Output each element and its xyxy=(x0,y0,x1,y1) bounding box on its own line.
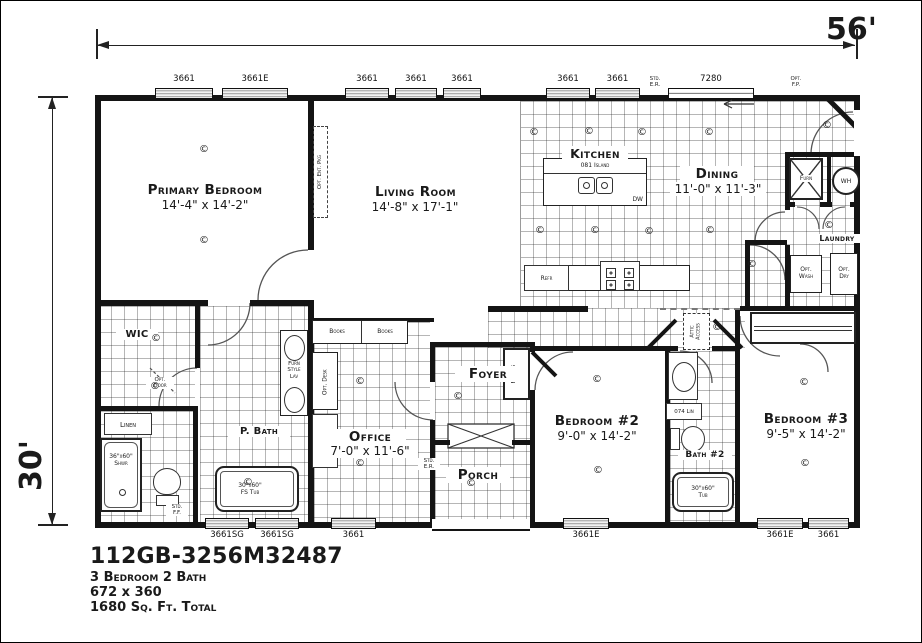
primary-bedroom-size: 14'-4" x 14'-2" xyxy=(140,198,270,212)
wall-front-door-right xyxy=(512,440,530,445)
wall-front-door-left xyxy=(430,440,450,445)
lav-sink-bottom xyxy=(284,387,305,413)
optional-entertainment: Opt. Ent. Pkg xyxy=(313,126,328,218)
ceiling-light-symbol: © xyxy=(824,220,834,231)
note-opt-fp: Opt. F.P. xyxy=(785,76,807,88)
window-label: 3661E xyxy=(554,530,618,540)
bath2-label: Bath #2 xyxy=(678,450,732,460)
pbath-vanity: Furn Style Lav xyxy=(280,330,308,416)
window-3661 xyxy=(546,88,590,99)
wall-shower-pbath xyxy=(193,406,198,525)
wall-furn-wh xyxy=(827,152,831,205)
ceiling-light-symbol: © xyxy=(199,144,209,155)
sink-basin-right xyxy=(596,177,613,194)
window-7280 xyxy=(668,88,754,99)
ceiling-light-symbol: © xyxy=(199,235,209,246)
optional-desk: Opt. Desk xyxy=(312,352,338,410)
primary-bedroom-label: Primary Bedroom xyxy=(120,182,290,198)
ceiling-light-symbol: © xyxy=(747,259,757,270)
furnace-label: Furn xyxy=(794,175,818,182)
ceiling-light-symbol: © xyxy=(150,381,160,392)
bath2-tub: 30"x60" Tub xyxy=(672,472,734,512)
living-room-size: 14'-8" x 17'-1" xyxy=(352,200,478,214)
box-dims-line: 672 x 360 xyxy=(90,585,162,600)
wall-primary-south-right xyxy=(250,300,314,306)
ceiling-light-symbol: © xyxy=(637,127,647,138)
ceiling-light-symbol: © xyxy=(712,322,722,333)
wall-office-foyer-upper xyxy=(430,342,435,382)
ceiling-light-symbol: © xyxy=(799,377,809,388)
bath2-sink xyxy=(672,362,696,392)
ceiling-light-symbol: © xyxy=(535,225,545,236)
porch-open-edge xyxy=(432,519,530,531)
opening-kitchen-hall xyxy=(660,308,740,310)
window-label: 3661 xyxy=(797,530,861,540)
wall-bed3-north xyxy=(740,306,860,311)
shower: 36"x60" Shwr xyxy=(100,438,142,512)
ceiling-light-symbol: © xyxy=(466,478,476,489)
linen-closet: Linen xyxy=(104,413,152,435)
window-3661e xyxy=(222,88,288,99)
ceiling-light-symbol: © xyxy=(592,374,602,385)
bedroom3-label: Bedroom #3 xyxy=(744,411,868,427)
ceiling-light-symbol: © xyxy=(355,458,365,469)
width-dimension-label: 56' xyxy=(826,12,877,47)
wall-wic-east xyxy=(195,306,200,368)
ceiling-light-symbol: © xyxy=(590,225,600,236)
window-3661 xyxy=(345,88,389,99)
ceiling-light-symbol: © xyxy=(355,376,365,387)
window-3661e xyxy=(563,518,609,529)
attic-access: Attic Access xyxy=(683,313,710,350)
window-3661 xyxy=(395,88,437,99)
bath2-linen: 074 Lin xyxy=(666,403,702,420)
window-3661sg xyxy=(255,518,299,529)
window-label: 7280 xyxy=(679,74,743,84)
optional-dryer: Opt. Dry xyxy=(830,253,858,295)
window-label: 3661 xyxy=(586,74,650,84)
window-3661e xyxy=(757,518,803,529)
wall-bedrooms-north-left xyxy=(530,346,678,351)
window-3661 xyxy=(331,518,376,529)
foyer-label: Foyer xyxy=(455,366,521,382)
note-std-er-porch: Std. E.R. xyxy=(418,458,440,470)
bookcase-label-left: Books xyxy=(313,329,361,336)
furnace-closet: Furn xyxy=(789,158,823,200)
pbath-freestanding-tub: 30"x60" FS Tub xyxy=(215,466,299,512)
window-3661 xyxy=(595,88,640,99)
kitchen-label: Kitchen xyxy=(562,146,628,161)
beds-baths-line: 3 Bedroom 2 Bath xyxy=(90,570,206,585)
window-3661sg xyxy=(205,518,249,529)
bath2-vanity xyxy=(668,352,698,400)
pbath-label: P. Bath xyxy=(228,426,290,437)
water-heater: WH xyxy=(832,167,860,195)
model-number: 112GB-3256M32487 xyxy=(90,544,343,569)
dining-label: Dining xyxy=(680,166,754,182)
ceiling-light-symbol: © xyxy=(584,126,594,137)
ceiling-light-symbol: © xyxy=(704,127,714,138)
wall-utility-south-c xyxy=(850,202,860,207)
ceiling-light-symbol: © xyxy=(453,391,463,402)
bookcase-label-right: Books xyxy=(361,329,409,336)
sink-basin-left xyxy=(578,177,595,194)
window-label: 3661E xyxy=(223,74,287,84)
note-std-ff: Std. F.F. xyxy=(166,504,188,516)
rear-door-opening xyxy=(854,110,862,156)
dining-size: 11'-0" x 11'-3" xyxy=(670,182,766,196)
wall-bath2-bed3 xyxy=(735,310,740,525)
living-room-label: Living Room xyxy=(348,184,483,200)
ceiling-light-symbol: © xyxy=(822,120,832,131)
ceiling-light-symbol: © xyxy=(151,333,161,344)
wall-kitchen-hall xyxy=(488,306,588,312)
range xyxy=(600,261,640,291)
porch-label: Porch xyxy=(446,467,510,483)
window-3661 xyxy=(155,88,213,99)
wall-office-porch xyxy=(430,420,435,525)
bedroom3-size: 9'-5" x 14'-2" xyxy=(748,427,864,441)
dishwasher-label: DW xyxy=(632,196,643,203)
office-bookcases: Books Books xyxy=(312,320,408,344)
kitchen-island: 081 Island DW xyxy=(543,158,647,206)
office-label: Office xyxy=(334,429,406,445)
wall-hall-north xyxy=(745,240,787,245)
optional-washer: Opt. Wash xyxy=(790,255,822,293)
office-size: 7'-0" x 11'-6" xyxy=(322,444,418,458)
ceiling-light-symbol: © xyxy=(644,226,654,237)
window-label: 3661SG xyxy=(245,530,309,540)
ceiling-light-symbol: © xyxy=(529,127,539,138)
window-3661 xyxy=(443,88,481,99)
toilet-bath2-tank xyxy=(670,428,680,450)
bedroom2-size: 9'-0" x 14'-2" xyxy=(542,429,652,443)
lav-sink-top xyxy=(284,335,305,361)
floor-plan-page: 56' 30' xyxy=(0,0,922,643)
wall-bed2-west xyxy=(530,390,535,525)
bedroom2-label: Bedroom #2 xyxy=(535,413,659,429)
depth-dimension-label: 30' xyxy=(14,440,49,491)
sqft-line: 1680 Sq. Ft. Total xyxy=(90,600,216,615)
wall-dining-hall xyxy=(745,240,750,308)
wall-utility-south-a xyxy=(785,202,795,207)
toilet-pbath xyxy=(153,468,181,495)
ceiling-light-symbol: © xyxy=(705,225,715,236)
refrigerator: Refr xyxy=(524,265,569,291)
ceiling-light-symbol: © xyxy=(243,477,253,488)
toilet-bath2 xyxy=(681,426,705,452)
bedroom3-closet xyxy=(750,312,856,344)
ceiling-light-symbol: © xyxy=(593,465,603,476)
wall-foyer-north xyxy=(430,342,532,347)
laundry-label: Laundry xyxy=(812,234,862,243)
window-label: 3661 xyxy=(430,74,494,84)
wall-primary-south-left xyxy=(98,300,208,306)
window-3661 xyxy=(808,518,849,529)
ceiling-light-symbol: © xyxy=(800,458,810,469)
wall-utility-north xyxy=(785,152,860,157)
island-label: 081 Island xyxy=(544,159,646,174)
window-label: 3661 xyxy=(152,74,216,84)
window-label: 3661 xyxy=(322,530,386,540)
wall-wic-south xyxy=(98,406,198,411)
